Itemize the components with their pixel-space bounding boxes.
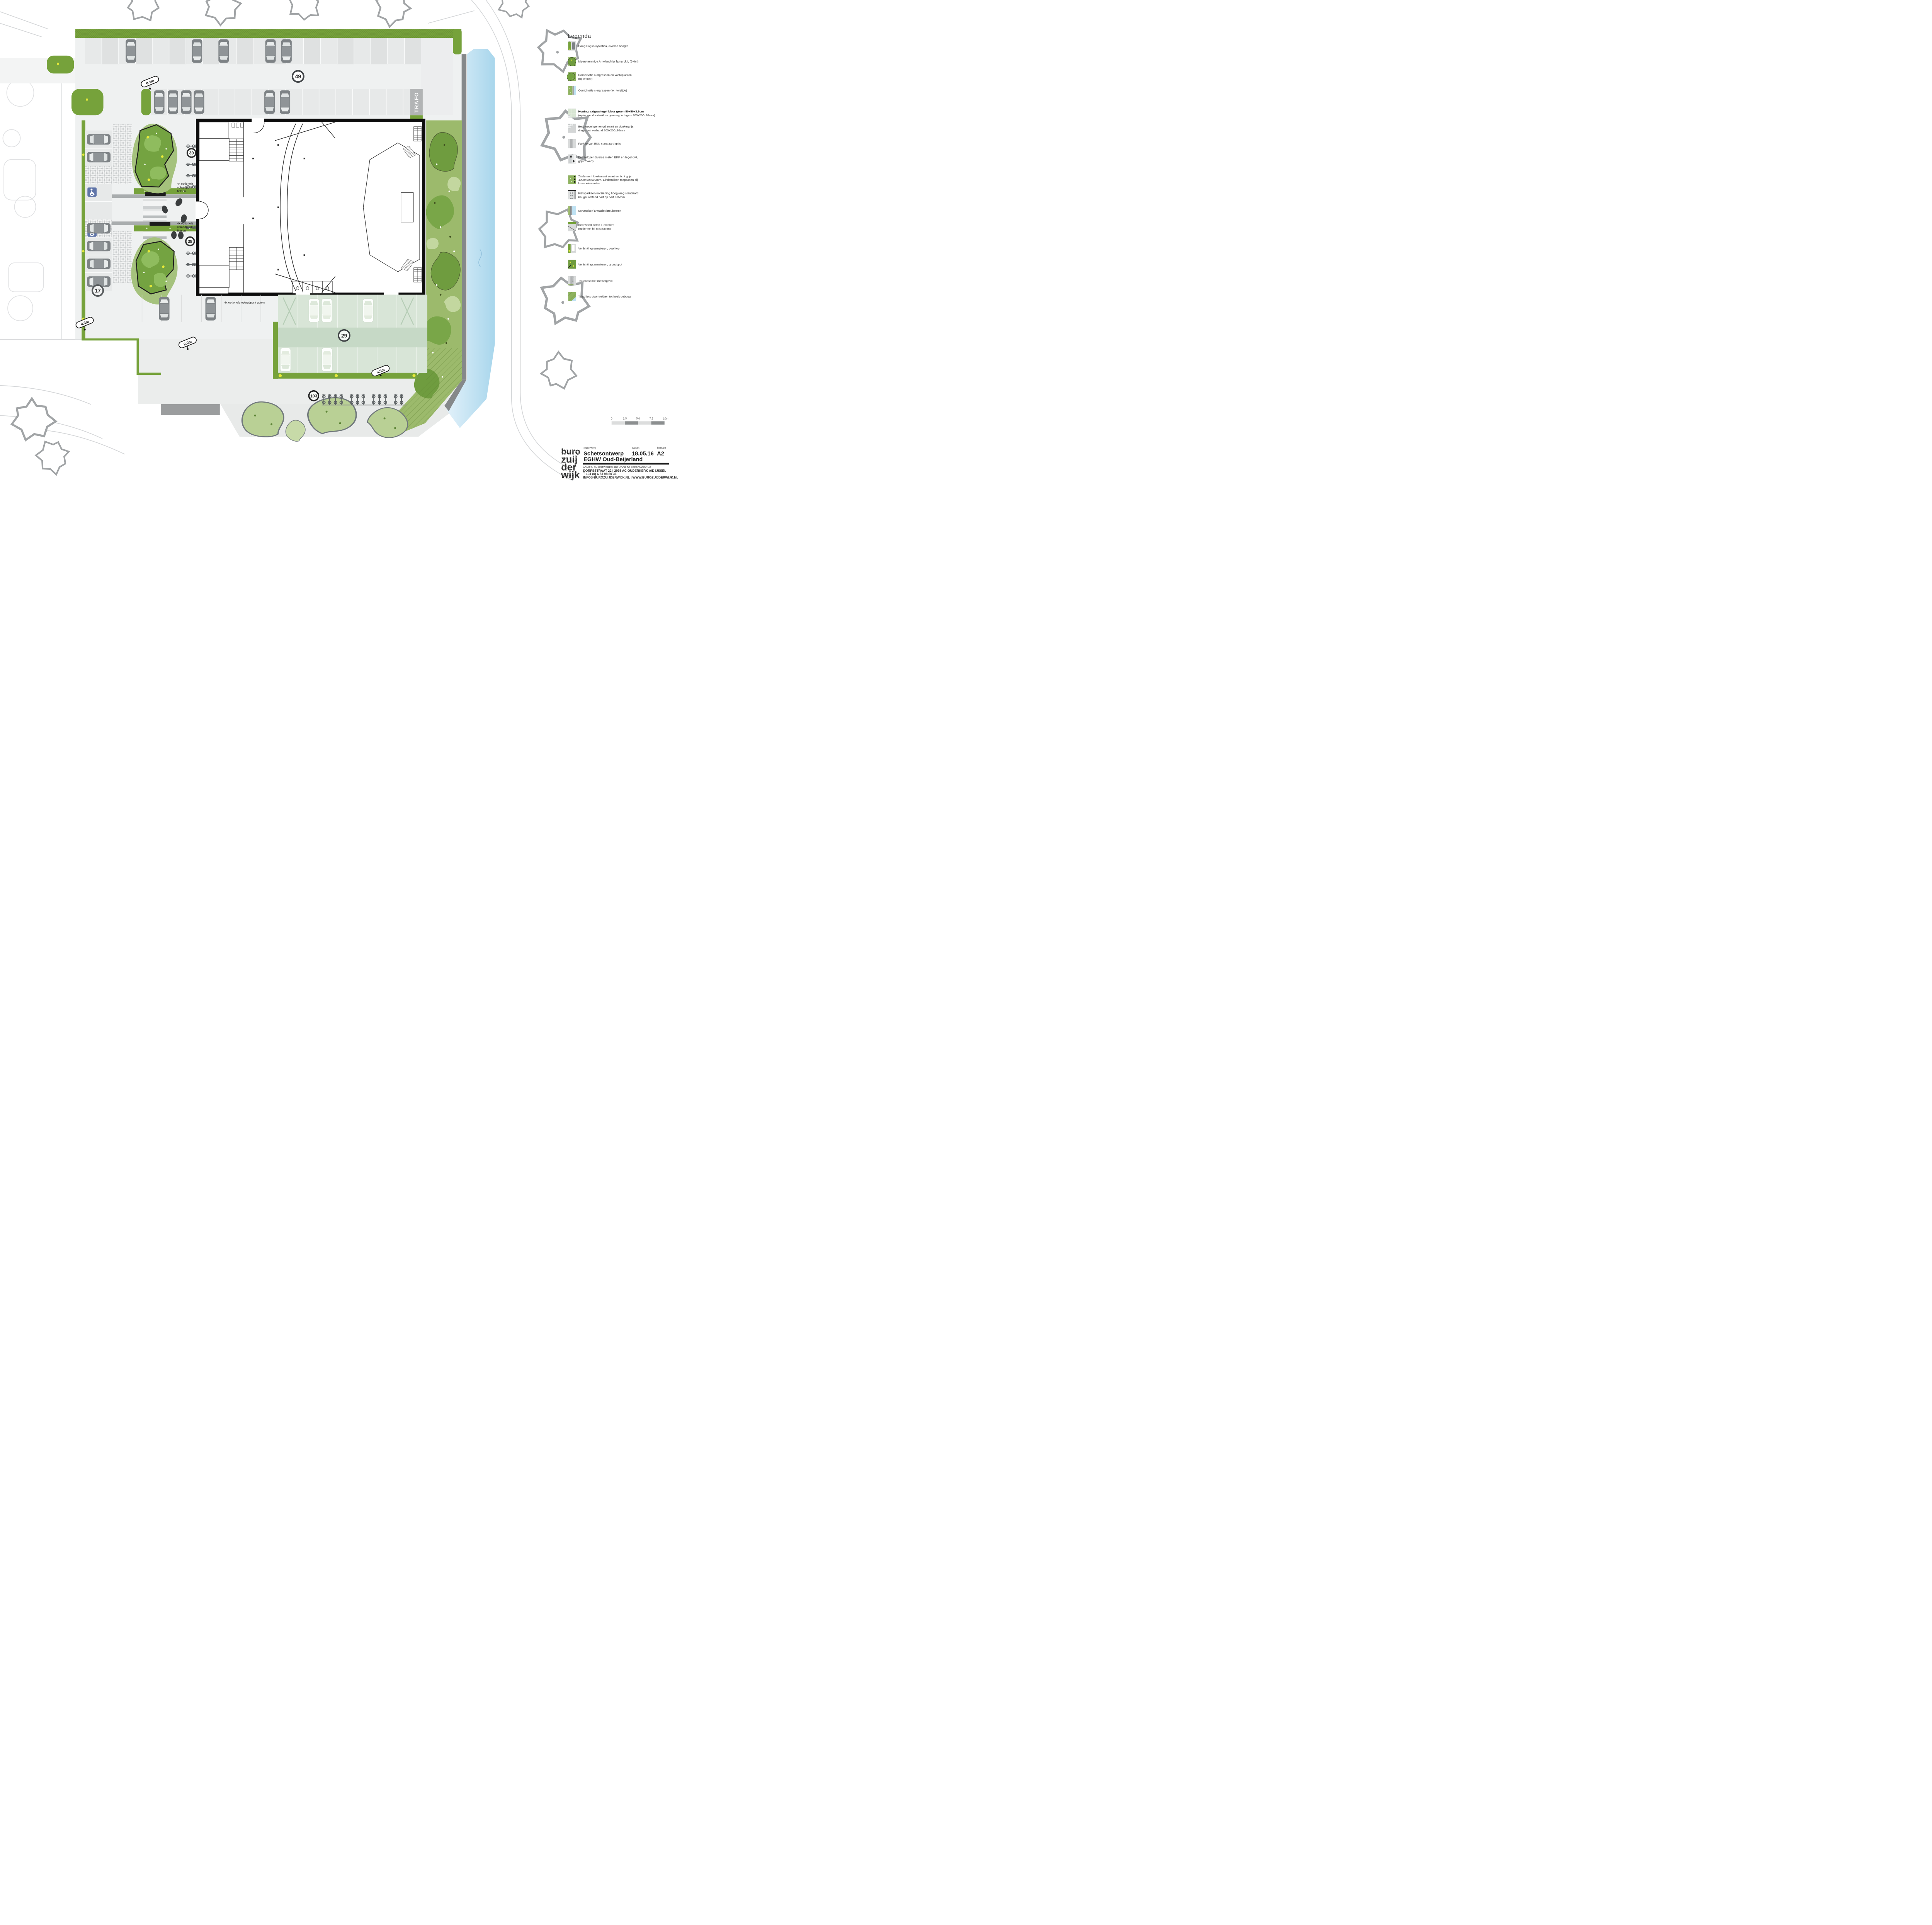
disabled-parking-sign <box>87 187 97 197</box>
trafo-label: TRAFO <box>413 92 420 112</box>
svg-text:beugel afstand hart op hart 37: beugel afstand hart op hart 375mm <box>578 195 625 199</box>
car <box>87 134 111 145</box>
svg-text:Betontegel gemengd zwart en do: Betontegel gemengd zwart en donkergrijs <box>578 125 633 128</box>
legend-icon-grastegel <box>568 109 576 117</box>
legend-texts: Haag Fagus sylvatica, diverse hoogte Mee… <box>578 44 655 298</box>
legend-icon-keerwand <box>568 222 576 231</box>
svg-text:4x optionele: 4x optionele <box>177 222 193 225</box>
tree-cluster-north <box>132 124 177 193</box>
legend-icon-parkeervak <box>568 139 576 148</box>
offsite-playground <box>3 79 44 321</box>
svg-text:(optioneel bij gasstation): (optioneel bij gasstation) <box>578 227 611 231</box>
wc-fixtures-north <box>232 123 243 127</box>
svg-text:Keerwand beton L-element: Keerwand beton L-element <box>578 223 614 227</box>
subject-line2: EGHW Oud-Beijerland <box>583 456 643 463</box>
svg-text:grijs, zwart): grijs, zwart) <box>578 160 594 163</box>
badge-bikes-total: 103 <box>309 391 318 401</box>
car <box>363 299 373 322</box>
badge-bikes-south: 38 <box>186 237 194 245</box>
svg-text:(bij entree): (bij entree) <box>578 77 592 81</box>
badge-parking-left: 17 <box>92 285 103 296</box>
legend-icon-schanskorf <box>568 206 576 215</box>
svg-text:Verlichtingsarmaturen, paal to: Verlichtingsarmaturen, paal top <box>578 247 619 250</box>
svg-text:4x optionele: 4x optionele <box>177 182 193 185</box>
svg-text:Parkeervak BKK standaard grijs: Parkeervak BKK standaard grijs <box>578 142 621 145</box>
car <box>159 297 170 321</box>
tile-patch <box>85 166 112 184</box>
car <box>322 348 332 371</box>
car <box>87 152 111 162</box>
svg-text:Combinatie siergrassen (achter: Combinatie siergrassen (achterzijde) <box>578 89 627 92</box>
car <box>281 39 292 63</box>
svg-text:38: 38 <box>188 240 192 244</box>
legend-icons: TRAFO <box>566 41 577 301</box>
svg-text:29: 29 <box>341 333 347 338</box>
tile-patch <box>112 124 132 184</box>
svg-text:Verlichtingsarmaturen, grondsp: Verlichtingsarmaturen, grondspot <box>578 263 622 266</box>
legend-icon-grondspot <box>568 260 576 269</box>
svg-text:7.5: 7.5 <box>650 417 653 420</box>
legend-icon-talud <box>568 292 576 301</box>
bench <box>150 222 170 226</box>
contact: INFO@BUROZUIJDERWIJK.NL | WWW.BUROZUIJDE… <box>583 476 678 479</box>
svg-text:400x400x500mm. Eindstukken toe: 400x400x500mm. Eindstukken toepassen bij <box>578 178 638 182</box>
car <box>87 258 111 269</box>
svg-text:wijk: wijk <box>561 469 580 480</box>
svg-text:Schanskorf antraciet breukstee: Schanskorf antraciet breuksteen <box>578 209 621 213</box>
car <box>264 90 275 114</box>
car <box>87 241 111 251</box>
staircase <box>229 139 243 161</box>
svg-text:losse elementen.: losse elementen. <box>578 182 601 185</box>
tile-patch <box>112 231 132 283</box>
svg-text:Trafokast met metselgevel: Trafokast met metselgevel <box>578 279 613 283</box>
site-plan-sheet: TRAFO <box>0 0 681 481</box>
legend-icon-haag <box>568 41 576 50</box>
svg-text:Meerstammige Amelanchier lamar: Meerstammige Amelanchier lamarckii, (5-6… <box>578 60 638 63</box>
legend-icon-amelanchier <box>568 57 576 66</box>
svg-text:2.5: 2.5 <box>623 417 627 420</box>
car <box>192 39 202 63</box>
svg-text:Combinatie siergrassen en vast: Combinatie siergrassen en vasteplanten <box>578 73 631 77</box>
car <box>154 90 165 114</box>
car <box>168 90 178 114</box>
car <box>181 90 192 114</box>
staircase <box>414 127 422 141</box>
svg-text:oplaadpunt: oplaadpunt <box>177 186 192 189</box>
svg-text:diagonaal verband 200x200x80mm: diagonaal verband 200x200x80mm <box>578 129 625 132</box>
legend-icon-fietsparkeer <box>568 190 576 199</box>
badge-parking-top: 49 <box>293 71 304 82</box>
legend-icon-betontegel <box>568 124 576 133</box>
format-value: A2 <box>657 451 664 457</box>
svg-text:39: 39 <box>189 151 194 156</box>
car <box>321 299 332 322</box>
svg-text:Haag Fagus sylvatica, diverse: Haag Fagus sylvatica, diverse hoogte <box>578 44 628 48</box>
svg-text:oplaadpunt: oplaadpunt <box>177 225 192 229</box>
svg-text:fietsen: fietsen <box>177 189 186 193</box>
scale-bar: 0 2.5 5.0 7.5 10m <box>611 417 668 425</box>
car <box>194 90 204 114</box>
legend-icon-siergras-entree <box>566 71 577 82</box>
phone: T +31 (0) 6 53 98 80 36 <box>583 473 617 476</box>
schanskorf-wall <box>462 54 467 380</box>
subject-line1: Schetsontwerp <box>583 451 624 457</box>
date-label: datum <box>632 447 639 449</box>
svg-text:5.0: 5.0 <box>636 417 640 420</box>
car <box>218 39 229 63</box>
legend-icon-siergras-achter <box>568 86 576 95</box>
car <box>280 90 290 114</box>
car <box>87 223 111 233</box>
svg-text:17: 17 <box>95 287 101 294</box>
car <box>265 39 276 63</box>
svg-text:TRAFO: TRAFO <box>572 277 575 284</box>
subject-label: onderwerp <box>583 447 596 449</box>
tagline: ADVIES- EN ONTWERPBURO VOOR DE LEEFOMGEV… <box>583 466 651 469</box>
title-block: buro zuij der wijk onderwerp Schetsontwe… <box>561 447 678 481</box>
buro-zuijderwijk-logo: buro zuij der wijk <box>561 447 580 481</box>
legend-icon-zitelement <box>568 175 576 184</box>
svg-text:Entreeloper diverse maten BKK: Entreeloper diverse maten BKK en tegel (… <box>578 156 638 159</box>
car <box>206 297 216 321</box>
title-rule <box>583 463 669 465</box>
svg-text:Talud iets door trekken tot ho: Talud iets door trekken tot hoek gebouw <box>578 295 631 298</box>
legend-icon-entreeloper <box>568 155 576 163</box>
note-car-charging: 4x optionele oplaadpunt auto's <box>224 301 265 304</box>
podium <box>401 192 413 222</box>
svg-text:0: 0 <box>611 417 612 420</box>
svg-text:Honingraatgrastegel kleur groe: Honingraatgrastegel kleur groen 50x50x3.… <box>578 110 644 113</box>
badge-parking-green: 29 <box>338 330 350 341</box>
svg-text:49: 49 <box>295 73 301 80</box>
svg-text:Zitelement U-element zwart en: Zitelement U-element zwart en licht grij… <box>578 175 631 178</box>
svg-text:103: 103 <box>310 394 317 398</box>
staircase <box>414 268 422 282</box>
address: DORPSSTRAAT 22 | 2935 AC OUDERKERK A/D I… <box>583 469 666 473</box>
car <box>280 348 291 371</box>
car <box>126 39 136 63</box>
building <box>196 118 423 306</box>
car <box>309 299 319 322</box>
svg-text:fietsen: fietsen <box>177 229 186 233</box>
legend-icon-trafokast: TRAFO <box>568 276 576 285</box>
badge-bikes-north: 39 <box>187 149 196 157</box>
svg-text:(optioneel doortrekken gemengd: (optioneel doortrekken gemengde tegels 2… <box>578 114 655 117</box>
legend: Legenda <box>566 33 655 301</box>
stage <box>363 143 420 272</box>
legend-icon-paaltop <box>568 244 576 253</box>
svg-text:10m: 10m <box>663 417 668 420</box>
date-value: 18.05.16 <box>632 451 653 457</box>
svg-text:Fietsparkeervoorziening hoog-l: Fietsparkeervoorziening hoog-laag standa… <box>578 191 638 195</box>
legend-title: Legenda <box>568 33 591 39</box>
format-label: formaat <box>657 447 666 449</box>
site-plan: TRAFO <box>0 0 681 481</box>
staircase <box>229 247 243 270</box>
